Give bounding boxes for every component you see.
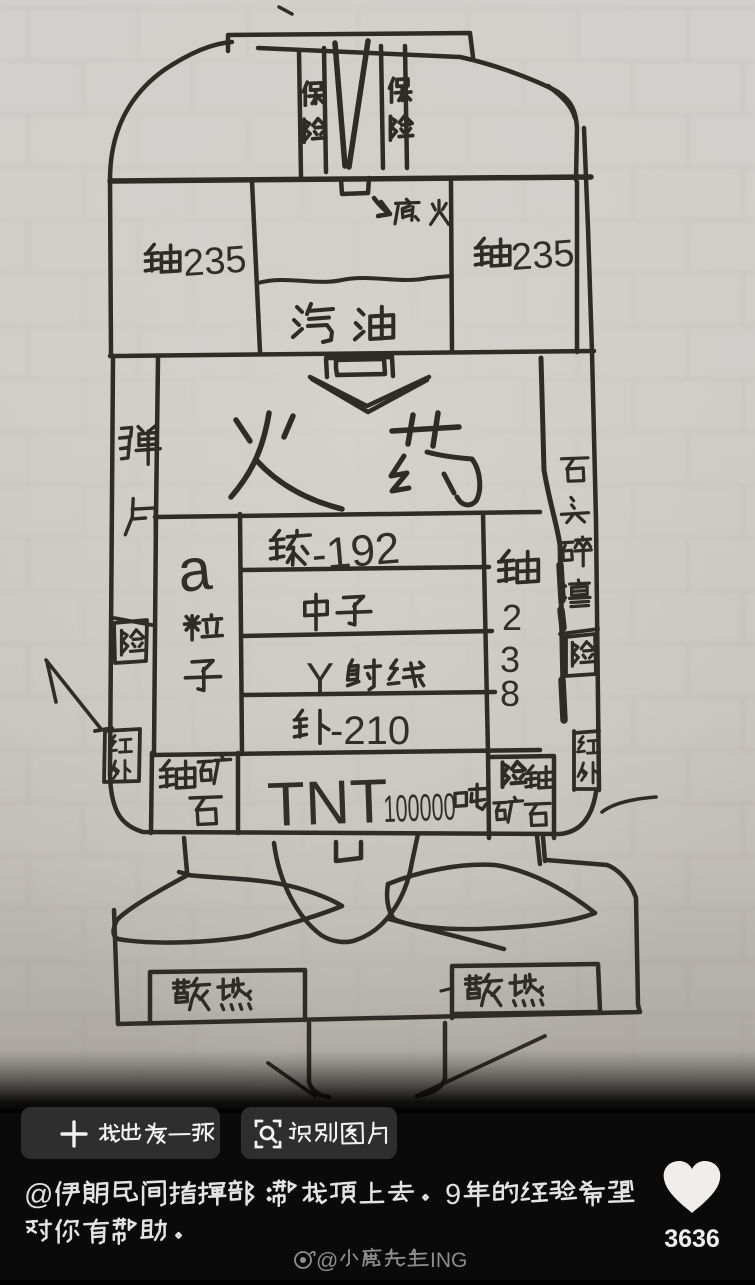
svg-text:235: 235 (182, 239, 248, 285)
svg-text:@: @ (316, 1248, 338, 1273)
svg-text:@: @ (24, 1179, 53, 1211)
svg-text:235: 235 (510, 233, 576, 279)
svg-text:3636: 3636 (664, 1225, 720, 1253)
svg-text:ING: ING (430, 1249, 467, 1272)
svg-text:TNT: TNT (266, 767, 389, 840)
svg-text:8: 8 (500, 673, 520, 714)
svg-text:-192: -192 (310, 523, 402, 579)
svg-text:-210: -210 (330, 709, 410, 753)
svg-text:Y: Y (306, 654, 334, 701)
svg-text:2: 2 (502, 597, 522, 638)
svg-text:9: 9 (445, 1179, 461, 1211)
svg-text:100000: 100000 (383, 787, 456, 831)
